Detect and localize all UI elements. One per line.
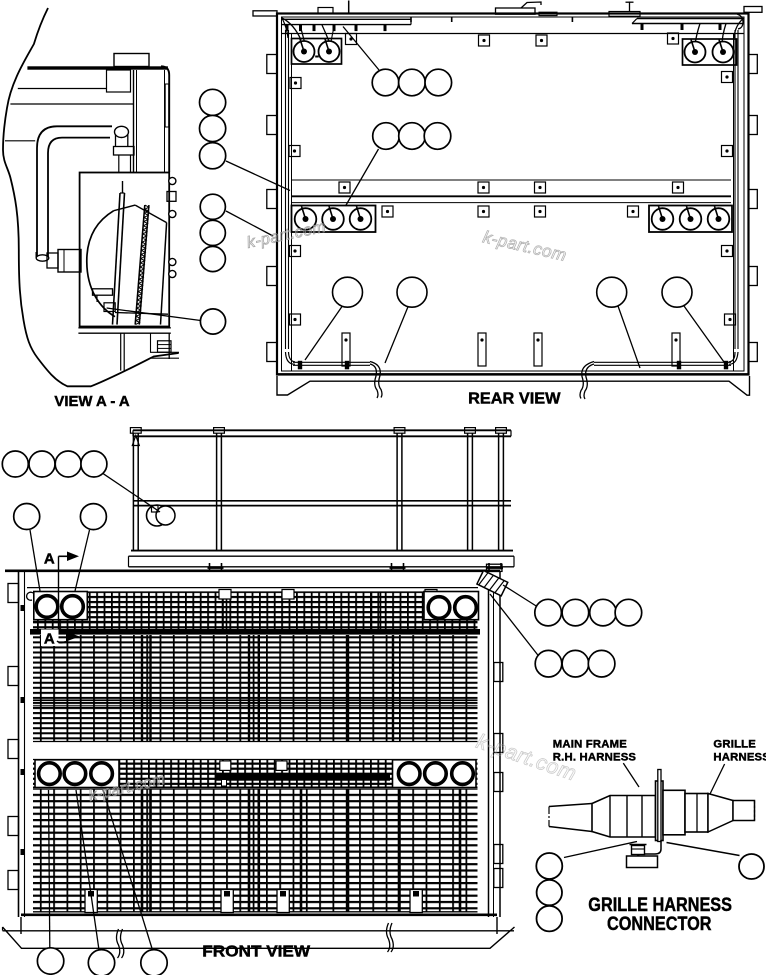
svg-text:MAIN FRAME: MAIN FRAME	[553, 739, 627, 751]
svg-text:REAR VIEW: REAR VIEW	[468, 391, 561, 408]
svg-text:CONNECTOR: CONNECTOR	[607, 914, 712, 935]
svg-text:A: A	[44, 551, 55, 568]
svg-text:GRILLE: GRILLE	[713, 739, 756, 751]
svg-text:FRONT VIEW: FRONT VIEW	[202, 944, 311, 961]
svg-text:A: A	[44, 631, 55, 648]
svg-text:VIEW A - A: VIEW A - A	[54, 393, 129, 410]
svg-text:HARNESS: HARNESS	[713, 752, 766, 764]
